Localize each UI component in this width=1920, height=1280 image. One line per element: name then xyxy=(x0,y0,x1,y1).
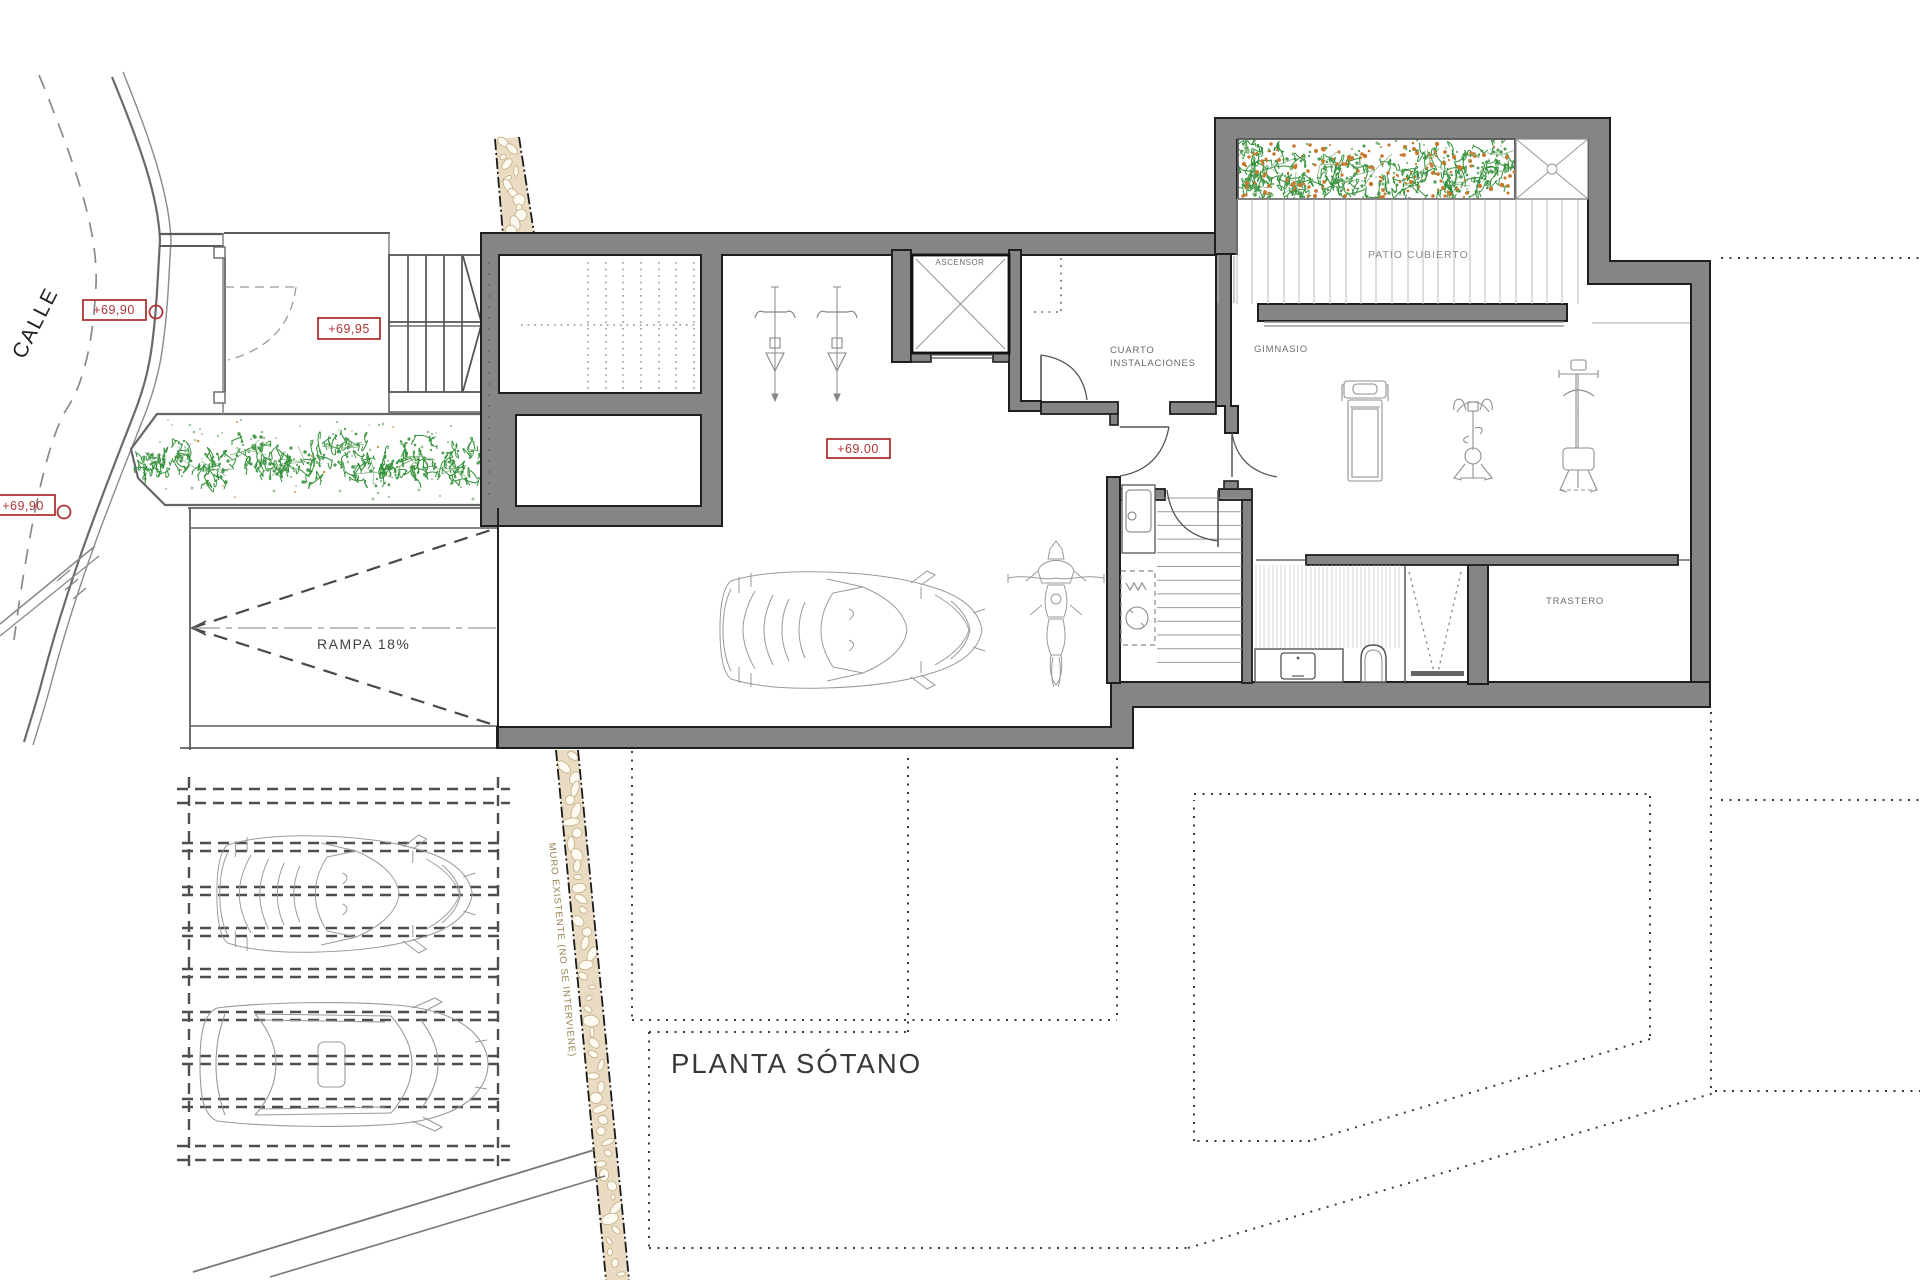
svg-text:ASCENSOR: ASCENSOR xyxy=(936,258,985,267)
svg-text:+69.00: +69.00 xyxy=(837,442,879,456)
svg-text:PLANTA SÓTANO: PLANTA SÓTANO xyxy=(671,1048,922,1079)
svg-text:GIMNASIO: GIMNASIO xyxy=(1254,344,1308,355)
svg-text:INSTALACIONES: INSTALACIONES xyxy=(1110,358,1196,369)
svg-text:RAMPA 18%: RAMPA 18% xyxy=(317,636,410,652)
svg-text:+69,90: +69,90 xyxy=(93,303,135,317)
svg-text:TRASTERO: TRASTERO xyxy=(1546,596,1604,607)
svg-text:CUARTO: CUARTO xyxy=(1110,345,1155,356)
svg-text:+69,90: +69,90 xyxy=(2,499,44,513)
svg-text:+69,95: +69,95 xyxy=(328,322,370,336)
svg-text:PATIO CUBIERTO: PATIO CUBIERTO xyxy=(1368,249,1469,261)
